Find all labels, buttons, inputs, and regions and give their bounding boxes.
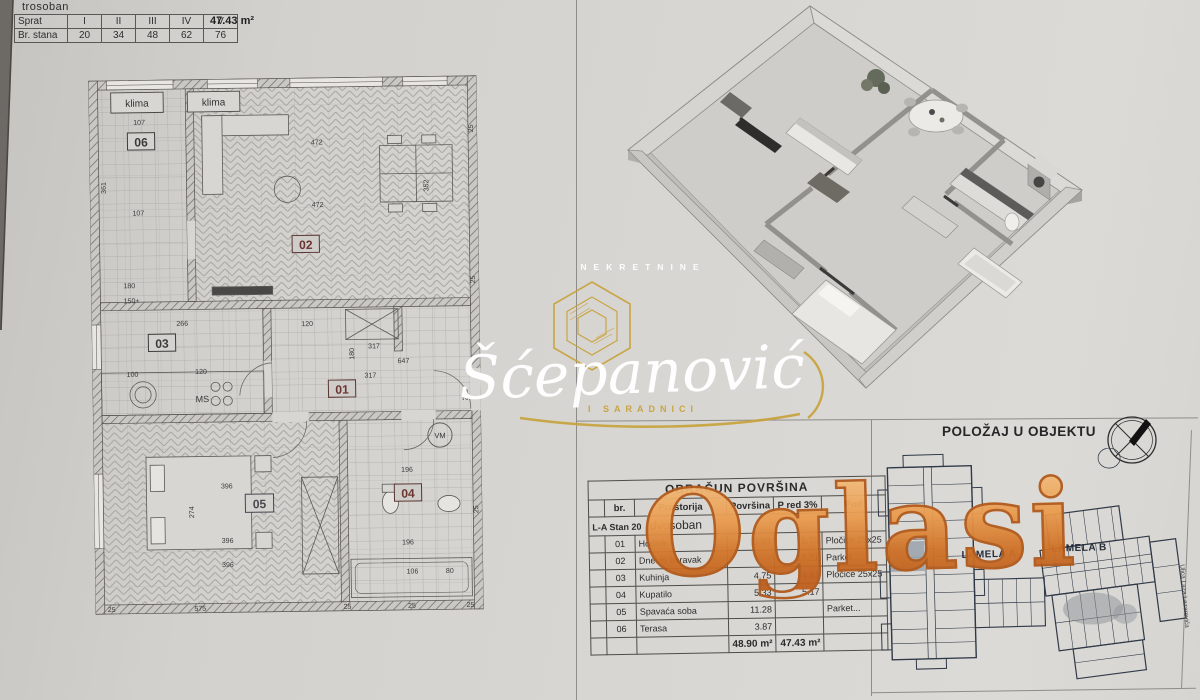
unit-area-value: 47.43 m² [210,15,254,27]
dim-label: 266 [176,321,188,328]
unit-number-cell: 20 [68,29,102,43]
spacer-cell [637,636,729,655]
dim-label: 25 [470,275,477,283]
row-room: Kuhinja [636,568,728,587]
unit-line-type: dvosoban [650,518,702,533]
dim-label: 396 [222,538,234,545]
dim-label: 25 [473,505,480,513]
total-pred-value: 47.43 m² [776,634,824,652]
floor-cell: III [136,15,170,29]
connector-band [974,578,1045,628]
dim-label: 120 [301,321,313,328]
dim-label: 210 [463,389,470,401]
spacer-cell [590,621,606,638]
unit-number-cell: 62 [170,29,204,43]
dim-label: 107 [133,120,145,127]
dim-label: 317 [368,343,380,350]
row-br: 02 [605,552,635,570]
vm-label: VM [434,431,445,440]
unit-number-cell: 48 [136,29,170,43]
row-br: 03 [606,569,636,587]
site-plan: LAMELA A LAMELA B Ulica Laza Lazarevića [873,446,1200,694]
dim-label: 25 [408,603,416,610]
klima-label: klima [125,99,149,110]
dim-label: 361 [101,182,108,194]
row-area: 11.28 [728,601,775,619]
dim-label: 196 [402,539,414,546]
floors-row-header: Sprat [15,15,68,29]
isometric-3d-apartment-render [613,0,1105,410]
photo-edge-shadow [0,0,24,360]
row-pred [775,600,823,618]
total-area-value: 48.90 m² [729,635,776,653]
row-area [727,550,774,568]
dim-label: 396 [221,483,233,490]
gray-watermark-blob [1063,592,1124,626]
row-pred: 5.75 [774,532,822,550]
row-br: 01 [605,535,635,553]
dim-label: 180 [123,283,135,290]
row-area: 5.33 [728,584,775,602]
units-row-header: Br. stana [15,29,68,43]
spacer-cell [589,553,605,570]
vertical-divider-line [576,0,577,700]
spacer-cell [590,604,606,621]
floor-cell: II [102,15,136,29]
row-br: 04 [606,586,636,604]
dim-label: 274 [189,506,196,518]
dim-label: 25 [468,124,475,132]
row-area: 4.75 [728,567,775,585]
col-header-area: Površina [726,497,773,515]
unit-floors-table: Sprat I II III IV V Br. stana 20 34 48 6… [14,14,238,43]
row-br: 05 [606,603,636,621]
area-table: OBRAČUN POVRŠINA br. Prostorija Površina… [587,475,888,655]
spacer-cell [589,536,605,553]
col-header-br: br. [604,499,634,517]
col-header-room: Prostorija [634,498,726,517]
row-pred: 17.21 [774,549,822,567]
dim-label: 472 [312,202,324,209]
lamela-b-building [1036,499,1193,681]
dim-label: 575 [194,606,206,613]
room-label-01: 01 [335,383,349,397]
dim-label: 317 [364,373,376,380]
dim-label: 196 [401,467,413,474]
row-area: 5.93 [727,533,774,551]
dim-label: 25 [344,604,352,611]
highlighted-unit [890,541,925,572]
area-calculation-section: OBRAČUN POVRŠINA br. Prostorija Površina… [587,475,888,655]
room-label-02: 02 [299,238,313,252]
row-pred: 4.61 [775,566,823,584]
dim-label: 107 [132,210,144,217]
unit-type-label: trosoban [22,1,238,13]
floor-cell: IV [170,15,204,29]
row-room: Terasa [636,619,728,638]
row-area: 3.87 [728,618,775,636]
dim-label: 25 [466,602,474,609]
unit-number-cell: 76 [204,29,238,43]
dim-label: 150+ [124,298,140,305]
lamela-a-label: LAMELA A [961,549,1016,561]
dim-label: 396 [222,562,234,569]
spacer-cell [590,570,606,587]
site-tree-circle [1098,448,1121,469]
floor-plan-drawing: klima klima 06 02 03 01 05 04 MS VM 107 … [88,67,484,622]
spacer-cell [588,500,604,517]
spacer-cell [591,638,607,655]
row-room: Kupatilo [636,585,728,604]
spacer-cell [590,587,606,604]
room-label-03: 03 [155,337,169,351]
kitchen-ms-label: MS [195,394,209,404]
unit-line-prefix: L-A Stan 20 [592,522,641,533]
dim-label: 647 [398,358,410,365]
dim-label: 25 [108,607,116,614]
dim-label: 100 [127,372,139,379]
row-br: 06 [606,620,636,638]
position-section-title: POLOŽAJ U OBJEKTU [942,424,1096,439]
unit-info-box: trosoban Sprat I II III IV V Br. stana 2… [14,1,238,43]
dim-label: 352 [423,179,430,191]
lamela-b-label: LAMELA B [1051,542,1107,554]
room-label-06: 06 [134,135,148,149]
row-room: Hodnik [635,534,727,553]
col-header-pred: P red 3% [773,496,821,514]
row-room: Spavaća soba [636,602,728,621]
klima-label: klima [202,97,226,108]
floor-cell: I [68,15,102,29]
row-pred [776,617,824,635]
dim-label: 180 [349,348,356,360]
room-label-04: 04 [401,486,415,500]
row-room: Dnevni boravak [635,551,727,570]
room-label-05: 05 [253,497,267,511]
dim-label: 106 [407,568,419,575]
row-pred: 5.17 [775,583,823,601]
dim-label: 472 [311,139,323,146]
unit-number-cell: 34 [102,29,136,43]
dim-label: 80 [446,568,454,575]
spacer-cell [607,637,637,655]
dim-label: 120 [195,369,207,376]
